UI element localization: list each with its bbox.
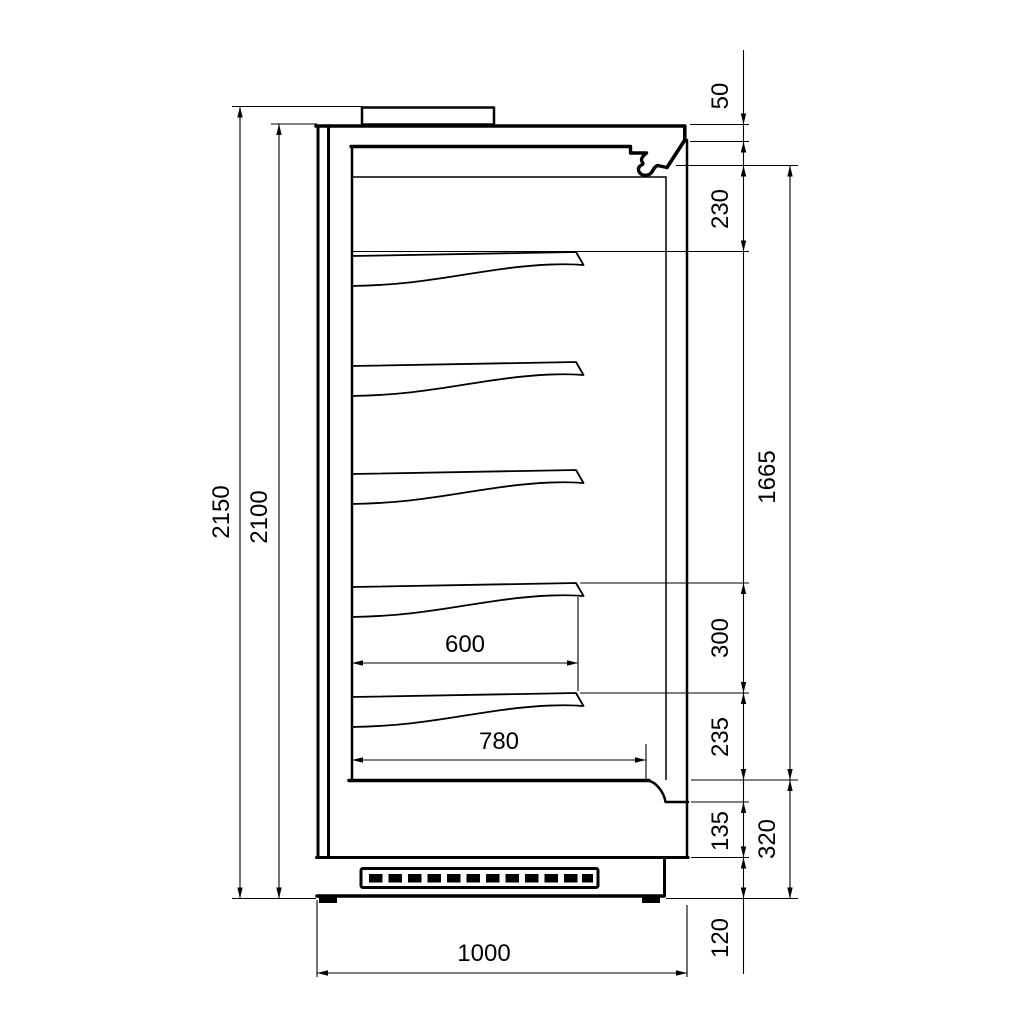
grille-slot	[564, 874, 578, 883]
grille-slot	[447, 874, 461, 883]
grille-slot	[525, 874, 539, 883]
grille-slot	[506, 874, 520, 883]
dim-label-overall-depth: 1000	[457, 940, 510, 967]
dim-label-overall-height: 2150	[208, 485, 235, 538]
dim-label-shelf-depth: 600	[445, 631, 485, 658]
dim-label-base-front: 135	[707, 811, 734, 851]
grille-slot	[486, 874, 500, 883]
foot-right	[642, 896, 660, 903]
dim-label-bottom-clearance: 235	[707, 717, 734, 757]
grille-slot	[467, 874, 481, 883]
background	[0, 0, 1024, 1024]
dim-label-base-total: 320	[754, 819, 781, 859]
dim-label-shelf-spacing: 300	[707, 618, 734, 658]
grille-slot	[582, 874, 593, 883]
grille-slot	[428, 874, 442, 883]
dim-label-interior-height: 1665	[754, 450, 781, 503]
grille-slot	[545, 874, 559, 883]
dim-label-plinth: 120	[707, 918, 734, 958]
grille-slot	[408, 874, 422, 883]
dim-label-body-height: 2100	[246, 490, 273, 543]
grille-slot	[389, 874, 403, 883]
drawing-canvas: 2150 2100 50 230 300 235 135 120 1665 32…	[0, 0, 1024, 1024]
grille-slot	[369, 874, 383, 883]
dim-label-top-clearance: 230	[707, 189, 734, 229]
foot-left	[319, 896, 337, 903]
cabinet-section-drawing: 2150 2100 50 230 300 235 135 120 1665 32…	[0, 0, 1024, 1024]
dim-label-deck-depth: 780	[479, 728, 519, 755]
dim-label-canopy-front: 50	[707, 83, 734, 110]
